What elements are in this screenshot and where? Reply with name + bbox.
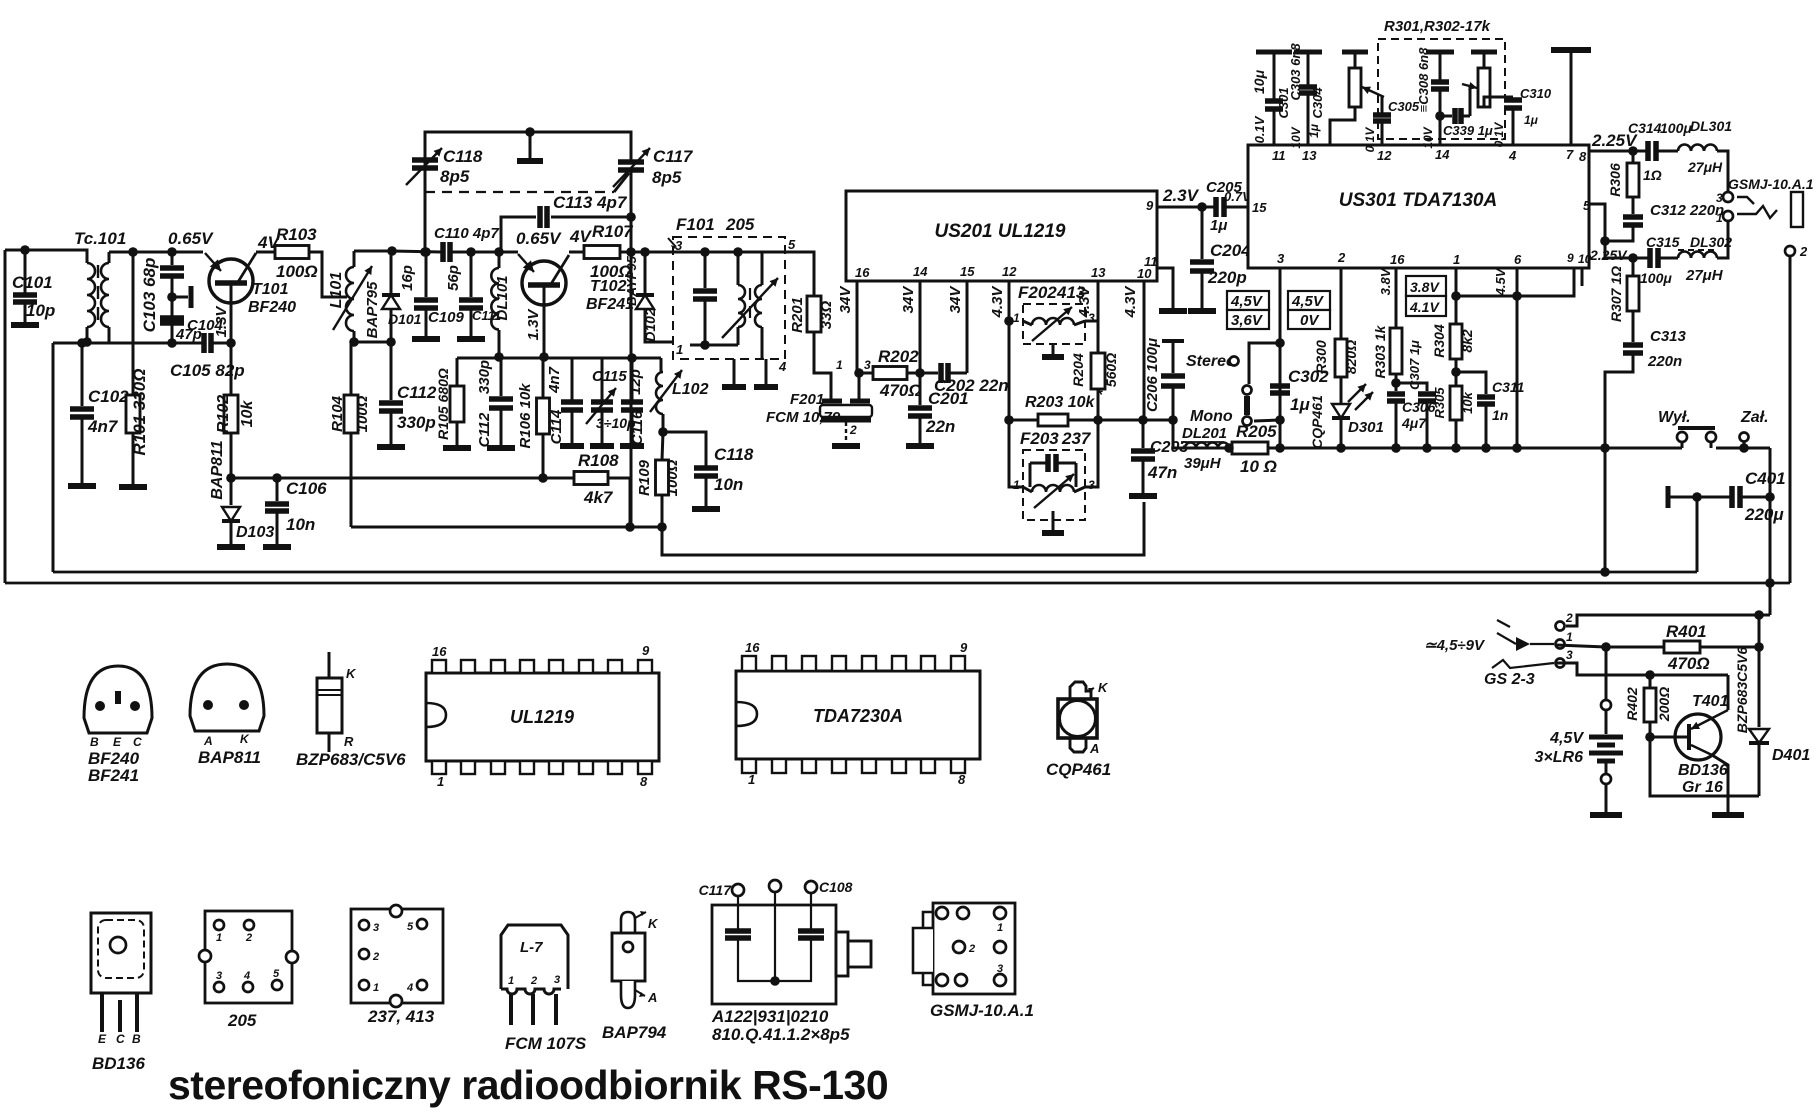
svg-text:9: 9 <box>1146 198 1154 213</box>
svg-text:2: 2 <box>372 951 379 963</box>
svg-text:Wył.: Wył. <box>1658 409 1691 426</box>
svg-text:3: 3 <box>1088 478 1095 492</box>
svg-text:1: 1 <box>508 975 514 987</box>
svg-text:1: 1 <box>437 774 444 789</box>
svg-text:2: 2 <box>1799 244 1808 259</box>
svg-text:R304: R304 <box>1431 324 1447 358</box>
svg-text:560Ω: 560Ω <box>1103 353 1119 387</box>
svg-text:2: 2 <box>968 943 975 955</box>
svg-text:D101: D101 <box>388 311 422 327</box>
svg-text:C311: C311 <box>1492 379 1525 395</box>
svg-text:47p: 47p <box>175 326 202 343</box>
svg-text:R109: R109 <box>636 459 653 496</box>
svg-text:9: 9 <box>1567 251 1574 265</box>
svg-text:C105 82p: C105 82p <box>170 361 245 380</box>
svg-text:1n: 1n <box>1492 407 1508 423</box>
svg-text:R103: R103 <box>276 225 317 244</box>
svg-text:R105 680Ω: R105 680Ω <box>435 368 451 440</box>
svg-text:R402: R402 <box>1624 687 1640 721</box>
svg-text:A122|931|0210: A122|931|0210 <box>711 1007 829 1026</box>
svg-text:2: 2 <box>849 423 857 437</box>
svg-text:6: 6 <box>1514 252 1522 267</box>
svg-text:3.8V: 3.8V <box>1410 279 1440 295</box>
svg-text:R108: R108 <box>578 451 619 470</box>
svg-text:F202: F202 <box>1018 283 1057 302</box>
svg-text:470Ω: 470Ω <box>1667 654 1710 673</box>
svg-text:R202: R202 <box>878 347 919 366</box>
svg-text:CQP461: CQP461 <box>1046 760 1111 779</box>
svg-text:56p: 56p <box>445 265 462 291</box>
svg-text:D103: D103 <box>236 524 274 541</box>
svg-text:330p: 330p <box>476 360 493 394</box>
svg-text:R203 10k: R203 10k <box>1025 394 1095 411</box>
svg-text:33Ω: 33Ω <box>818 301 835 330</box>
svg-text:4n7: 4n7 <box>546 366 563 394</box>
svg-text:4,5V: 4,5V <box>1549 730 1584 747</box>
svg-text:1: 1 <box>748 772 755 787</box>
svg-text:C307 1μ: C307 1μ <box>1407 340 1422 390</box>
svg-text:C304: C304 <box>1310 87 1325 119</box>
svg-text:R107: R107 <box>592 222 634 241</box>
svg-text:K: K <box>346 666 357 681</box>
svg-text:R401: R401 <box>1666 622 1707 641</box>
svg-text:A: A <box>1089 741 1099 756</box>
svg-text:8k2: 8k2 <box>1459 329 1475 353</box>
svg-text:C313: C313 <box>1650 328 1687 345</box>
svg-text:TDA7230A: TDA7230A <box>813 706 903 726</box>
svg-text:12: 12 <box>1377 148 1392 163</box>
svg-text:220μ: 220μ <box>1744 505 1784 524</box>
svg-text:K: K <box>648 916 659 931</box>
svg-text:1.3V: 1.3V <box>525 308 542 341</box>
svg-text:10k: 10k <box>1460 391 1475 413</box>
svg-text:3: 3 <box>997 963 1003 975</box>
svg-text:3: 3 <box>1566 648 1573 662</box>
svg-text:1: 1 <box>676 342 683 357</box>
svg-text:0.1V: 0.1V <box>1492 122 1506 148</box>
svg-text:C310: C310 <box>1520 86 1552 101</box>
svg-text:C112: C112 <box>397 383 437 402</box>
svg-text:R306: R306 <box>1607 163 1623 197</box>
svg-text:R106 10k: R106 10k <box>517 383 534 449</box>
svg-text:4: 4 <box>1508 148 1517 163</box>
svg-text:39μH: 39μH <box>1184 455 1222 472</box>
svg-text:FCM 10,79: FCM 10,79 <box>766 409 841 426</box>
svg-text:GS 2-3: GS 2-3 <box>1484 671 1535 688</box>
svg-text:1μ: 1μ <box>1210 217 1227 234</box>
svg-text:C206 100μ: C206 100μ <box>1144 338 1161 412</box>
svg-text:5: 5 <box>788 237 796 252</box>
svg-text:16: 16 <box>855 265 870 280</box>
svg-text:DL302: DL302 <box>1690 234 1732 250</box>
svg-text:220p: 220p <box>1207 268 1247 287</box>
svg-text:2: 2 <box>530 975 537 987</box>
svg-text:2: 2 <box>245 932 252 944</box>
svg-text:8: 8 <box>1579 149 1587 164</box>
svg-text:A: A <box>203 734 213 748</box>
svg-text:9: 9 <box>642 643 650 658</box>
svg-text:4: 4 <box>406 982 413 994</box>
svg-text:BD136: BD136 <box>92 1054 145 1073</box>
svg-text:220n: 220n <box>1647 353 1682 370</box>
svg-text:0.65V: 0.65V <box>516 229 562 248</box>
svg-text:1μ: 1μ <box>1290 395 1310 414</box>
svg-text:4V: 4V <box>569 227 592 246</box>
svg-text:F203: F203 <box>1020 429 1059 448</box>
svg-text:8: 8 <box>640 774 648 789</box>
svg-text:B: B <box>132 1032 141 1046</box>
svg-text:F201: F201 <box>790 391 824 408</box>
svg-text:10k: 10k <box>239 400 256 428</box>
svg-text:9: 9 <box>960 640 968 655</box>
svg-text:1: 1 <box>997 922 1003 934</box>
svg-text:14: 14 <box>913 264 928 279</box>
svg-text:1: 1 <box>373 982 379 994</box>
svg-text:UL1219: UL1219 <box>510 707 574 727</box>
svg-text:K: K <box>240 732 250 746</box>
svg-text:200Ω: 200Ω <box>1656 687 1672 722</box>
svg-text:2.25V: 2.25V <box>1589 247 1628 263</box>
svg-text:T101: T101 <box>252 281 289 298</box>
svg-text:16p: 16p <box>399 265 416 291</box>
svg-text:100Ω: 100Ω <box>276 262 318 281</box>
svg-text:4: 4 <box>778 359 787 374</box>
svg-text:≡C308 6n8: ≡C308 6n8 <box>1416 47 1431 112</box>
svg-text:C113 4p7: C113 4p7 <box>553 193 628 212</box>
svg-text:0.1V: 0.1V <box>1252 115 1267 143</box>
svg-text:10p: 10p <box>26 301 55 320</box>
svg-text:11: 11 <box>1144 254 1158 269</box>
svg-text:BAP794: BAP794 <box>602 1023 667 1042</box>
svg-text:1: 1 <box>1013 311 1020 325</box>
svg-text:C112: C112 <box>476 412 493 447</box>
svg-text:330p: 330p <box>397 413 436 432</box>
svg-text:GSMJ-10.A.1: GSMJ-10.A.1 <box>1728 176 1814 192</box>
svg-text:27μH: 27μH <box>1687 159 1723 175</box>
svg-text:16: 16 <box>745 640 760 655</box>
svg-text:27μH: 27μH <box>1685 267 1724 284</box>
svg-text:C339 1μ: C339 1μ <box>1443 123 1493 138</box>
svg-text:34V: 34V <box>837 285 854 314</box>
svg-text:820Ω: 820Ω <box>1343 340 1359 374</box>
svg-text:R205: R205 <box>1236 422 1277 441</box>
svg-text:Mono: Mono <box>1190 408 1233 425</box>
svg-text:4.5V: 4.5V <box>1493 267 1508 296</box>
svg-text:4.1V: 4.1V <box>1409 299 1440 315</box>
svg-text:10n: 10n <box>286 515 315 534</box>
svg-text:3: 3 <box>554 974 560 986</box>
svg-text:237, 413: 237, 413 <box>367 1007 435 1026</box>
svg-text:1: 1 <box>1566 630 1573 644</box>
svg-text:BZP683C5V6: BZP683C5V6 <box>1734 647 1750 734</box>
svg-text:100Ω: 100Ω <box>354 395 371 432</box>
svg-text:C303 6n8: C303 6n8 <box>1288 43 1303 101</box>
svg-text:BD136: BD136 <box>1678 762 1728 779</box>
svg-text:2.3V: 2.3V <box>1162 186 1200 205</box>
svg-text:C101: C101 <box>12 273 53 292</box>
svg-text:R303 1k: R303 1k <box>1372 324 1388 378</box>
svg-text:10 Ω: 10 Ω <box>1240 457 1277 476</box>
svg-text:C103 68p: C103 68p <box>140 258 159 333</box>
svg-text:4,5V: 4,5V <box>1291 293 1325 310</box>
svg-text:16: 16 <box>1390 252 1405 267</box>
svg-text:FCM 107S: FCM 107S <box>505 1034 587 1053</box>
svg-text:BAP811: BAP811 <box>209 440 226 499</box>
svg-text:CQP461: CQP461 <box>1309 395 1325 449</box>
svg-text:C401: C401 <box>1745 469 1786 488</box>
svg-text:E: E <box>98 1032 107 1046</box>
svg-text:2: 2 <box>1565 611 1573 625</box>
svg-text:C: C <box>133 735 142 749</box>
svg-text:D102: D102 <box>642 308 658 342</box>
svg-text:A: A <box>647 990 657 1005</box>
svg-text:C115: C115 <box>592 368 627 385</box>
svg-text:13: 13 <box>1302 148 1317 163</box>
svg-text:BAP811: BAP811 <box>198 748 261 767</box>
svg-text:1μ: 1μ <box>1307 123 1321 138</box>
svg-text:3: 3 <box>216 970 222 982</box>
svg-text:C314: C314 <box>1628 120 1662 136</box>
svg-text:4μ7: 4μ7 <box>1401 415 1427 431</box>
svg-text:1μ: 1μ <box>1524 113 1539 127</box>
svg-text:13: 13 <box>1091 265 1106 280</box>
svg-text:0.1V: 0.1V <box>1363 127 1377 153</box>
svg-text:BF241: BF241 <box>88 766 139 785</box>
svg-text:5: 5 <box>273 968 280 980</box>
svg-text:100μ: 100μ <box>1640 270 1672 286</box>
svg-text:C315: C315 <box>1646 234 1680 250</box>
svg-text:C114: C114 <box>548 409 565 444</box>
svg-text:C117: C117 <box>699 882 733 898</box>
svg-text:4k7: 4k7 <box>583 488 614 507</box>
svg-text:R300: R300 <box>1313 340 1329 374</box>
svg-text:16: 16 <box>432 644 447 659</box>
svg-text:47n: 47n <box>1147 463 1177 482</box>
svg-text:7: 7 <box>1566 147 1574 162</box>
svg-text:3: 3 <box>1716 191 1723 205</box>
svg-text:1: 1 <box>1453 252 1460 267</box>
svg-text:470Ω: 470Ω <box>879 381 922 400</box>
svg-text:0.65V: 0.65V <box>168 229 214 248</box>
svg-text:100μ: 100μ <box>1660 120 1692 136</box>
svg-text:C117: C117 <box>653 147 694 166</box>
svg-text:34V: 34V <box>947 285 964 314</box>
svg-text:205: 205 <box>725 215 755 234</box>
svg-text:D301: D301 <box>1348 419 1384 436</box>
svg-text:3,6V: 3,6V <box>1231 312 1264 329</box>
svg-text:R307 1Ω: R307 1Ω <box>1608 266 1624 322</box>
svg-text:R204: R204 <box>1070 353 1086 387</box>
svg-text:4.3V: 4.3V <box>989 285 1006 319</box>
svg-text:DL301: DL301 <box>1690 118 1732 134</box>
svg-text:BF240: BF240 <box>248 299 296 316</box>
svg-text:US301 TDA7130A: US301 TDA7130A <box>1339 190 1497 211</box>
svg-text:3: 3 <box>373 922 379 934</box>
svg-text:R: R <box>344 734 354 749</box>
svg-text:BZP683/C5V6: BZP683/C5V6 <box>296 750 406 769</box>
svg-text:11: 11 <box>1272 148 1286 163</box>
svg-text:E: E <box>113 735 122 749</box>
svg-text:4,5V: 4,5V <box>1230 293 1264 310</box>
svg-text:810.Q.41.1.2×8p5: 810.Q.41.1.2×8p5 <box>712 1025 850 1044</box>
svg-text:3: 3 <box>1088 311 1095 325</box>
svg-text:3: 3 <box>1277 251 1285 266</box>
svg-text:10V: 10V <box>1289 126 1303 148</box>
svg-text:3.8V: 3.8V <box>1378 267 1393 295</box>
svg-text:T401: T401 <box>1692 693 1729 710</box>
svg-text:L101: L101 <box>328 272 345 309</box>
svg-text:C: C <box>116 1032 125 1046</box>
svg-text:0V: 0V <box>1300 312 1320 329</box>
svg-text:B: B <box>90 735 99 749</box>
svg-text:C312 220n: C312 220n <box>1650 202 1724 219</box>
svg-text:1: 1 <box>1716 211 1723 225</box>
svg-text:14: 14 <box>1435 147 1450 162</box>
svg-text:22n: 22n <box>925 417 955 436</box>
svg-text:3: 3 <box>864 358 871 372</box>
svg-text:C109: C109 <box>428 309 465 326</box>
svg-text:12: 12 <box>1002 264 1017 279</box>
svg-text:C118: C118 <box>443 147 483 166</box>
svg-text:BAP795: BAP795 <box>364 281 381 338</box>
svg-text:1: 1 <box>1013 478 1020 492</box>
svg-text:C110 4p7: C110 4p7 <box>434 225 499 242</box>
svg-text:5: 5 <box>407 921 414 933</box>
svg-text:C102: C102 <box>88 387 129 406</box>
svg-text:4: 4 <box>243 970 250 982</box>
svg-text:10V: 10V <box>1421 126 1435 148</box>
svg-text:2: 2 <box>1337 250 1346 265</box>
svg-text:US201 UL1219: US201 UL1219 <box>935 221 1066 242</box>
svg-text:R104: R104 <box>329 395 346 432</box>
svg-text:Tc.101: Tc.101 <box>74 229 126 248</box>
svg-text:8p5: 8p5 <box>440 167 470 186</box>
svg-text:C118: C118 <box>714 445 754 464</box>
svg-text:F101: F101 <box>676 215 715 234</box>
svg-text:*: * <box>1096 387 1103 404</box>
svg-text:K: K <box>1098 680 1109 695</box>
svg-text:4.3V: 4.3V <box>1122 285 1139 319</box>
svg-text:DL201: DL201 <box>1182 425 1227 442</box>
svg-text:R305: R305 <box>1432 387 1447 419</box>
svg-text:R102: R102 <box>215 395 232 433</box>
svg-text:100Ω: 100Ω <box>664 459 681 496</box>
svg-text:8p5: 8p5 <box>652 168 682 187</box>
svg-text:D401: D401 <box>1772 747 1810 764</box>
svg-text:R101 330Ω: R101 330Ω <box>130 368 149 455</box>
svg-text:C204: C204 <box>1210 241 1251 260</box>
svg-text:DL101: DL101 <box>494 275 511 320</box>
svg-text:34V: 34V <box>900 285 917 314</box>
svg-text:3×LR6: 3×LR6 <box>1535 749 1584 766</box>
svg-text:C201: C201 <box>928 389 969 408</box>
svg-text:413: 413 <box>1056 283 1086 302</box>
svg-text:1.3V: 1.3V <box>213 305 230 338</box>
svg-text:15: 15 <box>1252 200 1267 215</box>
svg-text:C106: C106 <box>286 479 327 498</box>
svg-text:L102: L102 <box>672 381 709 398</box>
svg-text:1: 1 <box>836 358 843 372</box>
svg-text:R301,R302-17k: R301,R302-17k <box>1384 18 1491 35</box>
svg-text:205: 205 <box>227 1011 257 1030</box>
svg-text:1Ω: 1Ω <box>1643 167 1662 183</box>
svg-text:10n: 10n <box>714 475 743 494</box>
svg-text:GSMJ-10.A.1: GSMJ-10.A.1 <box>930 1001 1034 1020</box>
svg-text:Gr 16: Gr 16 <box>1682 779 1723 796</box>
svg-text:stereofoniczny radioodbiornik: stereofoniczny radioodbiornik RS-130 <box>168 1062 888 1108</box>
svg-text:R201: R201 <box>789 297 806 333</box>
svg-text:Zał.: Zał. <box>1740 409 1769 426</box>
svg-text:C108: C108 <box>819 879 853 895</box>
svg-text:10μ: 10μ <box>1251 69 1267 94</box>
svg-text:4n7: 4n7 <box>87 417 119 436</box>
svg-text:15: 15 <box>960 264 975 279</box>
svg-text:8: 8 <box>958 772 966 787</box>
svg-text:L-7: L-7 <box>520 939 543 956</box>
svg-text:1: 1 <box>216 932 222 944</box>
svg-text:≃4,5÷9V: ≃4,5÷9V <box>1424 637 1486 654</box>
svg-text:237: 237 <box>1061 429 1092 448</box>
